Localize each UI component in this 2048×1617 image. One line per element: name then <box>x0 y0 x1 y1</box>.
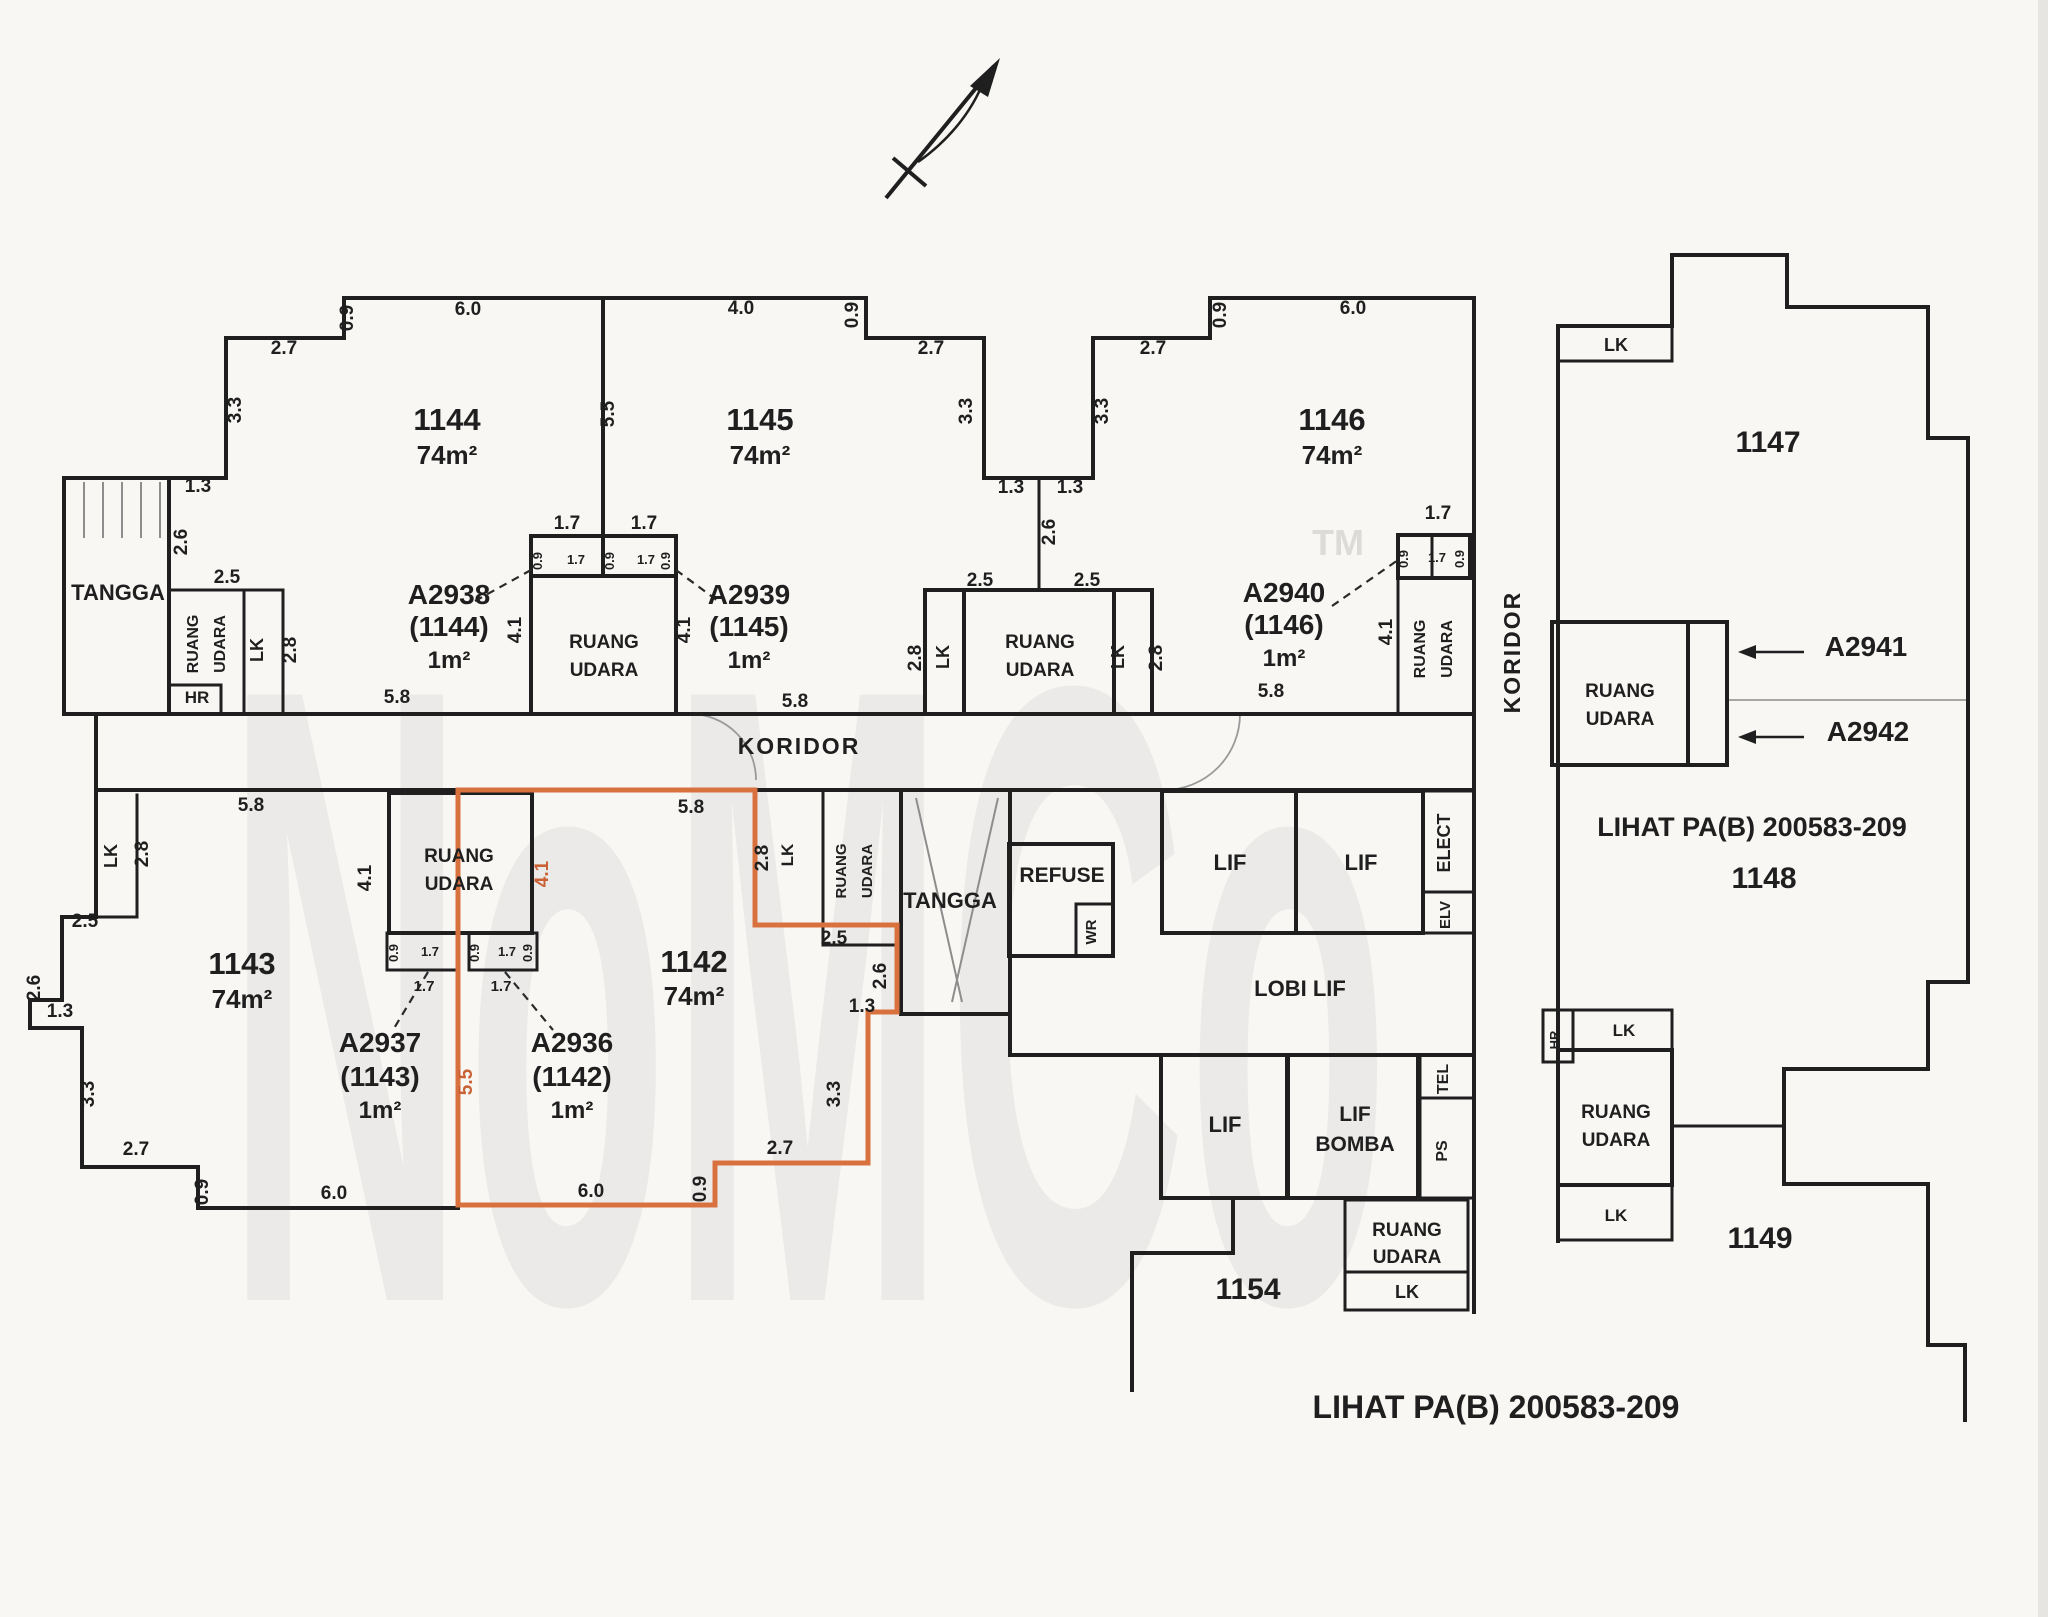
dim: 1.7 <box>567 552 585 567</box>
room-lk-1142: LK <box>778 843 797 866</box>
dim: 5.8 <box>678 797 704 818</box>
dim: 1.7 <box>414 978 435 995</box>
wall-right-steps <box>1784 982 1968 1420</box>
ruang-udara-1147a: RUANG <box>1585 681 1655 702</box>
ruang-udara-1144a: RUANG <box>185 615 202 674</box>
room-ps: PS <box>1434 1140 1451 1162</box>
room-lk-1147: LK <box>1604 335 1628 355</box>
ruang-udara-c2a: RUANG <box>1005 632 1075 653</box>
room-tangga-bottom: TANGGA <box>903 888 997 913</box>
ruang-udara-1143a: RUANG <box>424 846 494 867</box>
accessory-a2939-unit: (1145) <box>709 611 788 642</box>
dim: 2.7 <box>1140 338 1166 359</box>
room-lk-1144: LK <box>247 638 267 662</box>
room-lk-1145b: LK <box>1108 645 1128 669</box>
dim: 1.7 <box>637 552 655 567</box>
corridor-label-v: KORIDOR <box>1499 591 1525 714</box>
room-lif-2: LIF <box>1345 850 1378 875</box>
accessory-a2936: A2936 <box>531 1027 614 1058</box>
dim: 1.7 <box>554 513 580 534</box>
accessory-a2938: A2938 <box>408 579 491 610</box>
dim-boundary: 5.5 <box>456 1068 477 1095</box>
dim: 2.5 <box>821 928 848 949</box>
watermark-tm: TM <box>1312 522 1364 563</box>
unit-1146-area: 74m² <box>1302 440 1363 470</box>
dim: 1.7 <box>631 513 657 534</box>
room-ruang-udara-s1: RUANG <box>1372 1220 1442 1241</box>
dim: 0.9 <box>520 944 535 962</box>
dim: 4.1 <box>505 616 526 643</box>
accessory-a2940-area: 1m² <box>1263 645 1306 672</box>
ruang-udara-c2b: UDARA <box>1006 660 1075 681</box>
dim: 0.9 <box>1396 550 1411 568</box>
unit-1143-number: 1143 <box>208 946 275 981</box>
dim: 2.6 <box>24 975 45 1001</box>
north-arrow-icon <box>886 58 1000 198</box>
ruang-udara-1143b: UDARA <box>425 874 494 895</box>
unit-1146-number: 1146 <box>1298 402 1365 437</box>
accessory-a2941: A2941 <box>1825 631 1908 662</box>
accessory-a2940-unit: (1146) <box>1244 609 1323 640</box>
room-tel: TEL <box>1435 1064 1452 1094</box>
dim: 1.7 <box>421 944 439 959</box>
dim: 1.3 <box>47 1001 73 1022</box>
dim: 0.9 <box>337 305 358 331</box>
dim: 2.6 <box>1039 519 1060 545</box>
dim: 2.8 <box>1146 645 1167 671</box>
accessory-a2936-area: 1m² <box>551 1097 594 1124</box>
dim: 3.3 <box>225 397 246 423</box>
dim: 2.8 <box>905 645 926 671</box>
dim: 2.5 <box>72 911 99 932</box>
room-wr: WR <box>1083 919 1100 944</box>
dim: 0.9 <box>467 944 482 962</box>
dim-boundary: 4.1 <box>532 860 553 887</box>
room-lif-bomba-2: BOMBA <box>1315 1133 1394 1156</box>
accessory-a2937-unit: (1143) <box>340 1061 419 1092</box>
corridor-label-h: KORIDOR <box>738 733 861 759</box>
room-hr-top: HR <box>185 688 210 707</box>
room-hr-right: HR <box>1547 1030 1562 1049</box>
unit-1144-area: 74m² <box>417 440 478 470</box>
dim: 0.9 <box>1452 550 1467 568</box>
ruang-udara-1142a: RUANG <box>833 844 850 899</box>
unit-1144-number: 1144 <box>413 402 481 437</box>
dim: 6.0 <box>455 299 481 320</box>
ruang-udara-1144b: UDARA <box>212 615 229 673</box>
dim: 4.1 <box>1376 618 1397 645</box>
dim: 5.8 <box>238 795 264 816</box>
dim: 6.0 <box>1340 298 1366 319</box>
note-right: LIHAT PA(B) 200583-209 <box>1597 812 1907 842</box>
dim: 1.7 <box>1425 503 1451 524</box>
accessory-a2940: A2940 <box>1243 577 1326 608</box>
unit-1148-number: 1148 <box>1731 862 1796 895</box>
dim: 3.3 <box>956 398 977 424</box>
dim: 2.5 <box>967 570 994 591</box>
dim: 2.8 <box>280 637 301 663</box>
dim: 2.8 <box>752 845 773 871</box>
unit-1142-number: 1142 <box>660 944 727 979</box>
room-lk-1143: LK <box>101 844 121 868</box>
a2941-arrow <box>1738 645 1804 659</box>
dim: 1.3 <box>185 476 211 497</box>
dim: 0.9 <box>842 302 863 328</box>
dim: 3.3 <box>1092 398 1113 424</box>
a2942-arrow <box>1738 730 1804 744</box>
unit-1154-number: 1154 <box>1215 1273 1280 1306</box>
accessory-a2939-area: 1m² <box>728 647 771 674</box>
room-lk-r1: LK <box>1613 1021 1636 1040</box>
dim: 5.5 <box>598 400 619 427</box>
dim: 4.0 <box>728 298 754 319</box>
scan-edge <box>2038 0 2048 1617</box>
accessory-a2937: A2937 <box>339 1027 422 1058</box>
dim: 2.7 <box>123 1139 149 1160</box>
accessory-a2937-area: 1m² <box>359 1097 402 1124</box>
room-lif-3: LIF <box>1209 1112 1242 1137</box>
dim: 0.9 <box>690 1176 711 1202</box>
watermark: NoMCo <box>225 504 1390 1487</box>
ruang-udara-c1b: UDARA <box>570 660 639 681</box>
dim: 5.8 <box>782 691 808 712</box>
dim: 3.3 <box>78 1081 99 1107</box>
dim: 1.3 <box>849 996 875 1017</box>
room-lobi-lif: LOBI LIF <box>1254 976 1346 1001</box>
dim: 4.1 <box>355 864 376 891</box>
ruang-udara-r1: RUANG <box>1581 1102 1651 1123</box>
room-elect: ELECT <box>1434 813 1454 872</box>
dim: 2.6 <box>171 529 192 555</box>
dim: 2.5 <box>214 567 241 588</box>
dim: 2.7 <box>918 338 944 359</box>
dim: 2.6 <box>870 963 891 989</box>
accessory-a2938-unit: (1144) <box>409 611 488 642</box>
unit-1145-area: 74m² <box>730 440 791 470</box>
note-bottom: LIHAT PA(B) 200583-209 <box>1313 1389 1680 1425</box>
dim: 1.3 <box>1057 477 1083 498</box>
dim: 0.9 <box>386 944 401 962</box>
dim: 6.0 <box>578 1181 604 1202</box>
dim: 5.8 <box>1258 681 1284 702</box>
dim: 1.3 <box>998 477 1024 498</box>
floor-plan-svg: NoMCo TM <box>0 0 2048 1617</box>
dim: 2.7 <box>767 1138 793 1159</box>
dim: 1.7 <box>498 944 516 959</box>
room-elv: ELV <box>1437 901 1454 929</box>
ruang-udara-c1a: RUANG <box>569 632 639 653</box>
dim: 0.9 <box>1210 302 1231 328</box>
room-lk-s: LK <box>1395 1282 1419 1302</box>
room-refuse: REFUSE <box>1019 864 1104 887</box>
room-lif-bomba-1: LIF <box>1339 1103 1371 1126</box>
accessory-a2938-area: 1m² <box>428 647 471 674</box>
unit-1143-area: 74m² <box>212 984 273 1014</box>
room-lk-r2: LK <box>1605 1206 1628 1225</box>
accessory-a2936-unit: (1142) <box>532 1061 611 1092</box>
accessory-a2939: A2939 <box>708 579 791 610</box>
unit-1149-number: 1149 <box>1727 1222 1792 1255</box>
stair-hatch-top-tangga <box>84 482 160 538</box>
dim: 2.7 <box>271 338 297 359</box>
unit-1145-number: 1145 <box>726 402 793 437</box>
dim: 5.8 <box>384 687 410 708</box>
dim: 4.1 <box>674 616 695 643</box>
dim: 2.5 <box>1074 570 1101 591</box>
ruang-udara-1146b: UDARA <box>1439 620 1456 678</box>
room-tangga-top: TANGGA <box>71 580 165 605</box>
ruang-udara-1146a: RUANG <box>1412 620 1429 679</box>
room-ruang-udara-s2: UDARA <box>1373 1247 1442 1268</box>
dim: 1.7 <box>491 978 512 995</box>
room-lk-1145a: LK <box>933 645 953 669</box>
dim: 1.7 <box>1428 550 1446 565</box>
dim: 6.0 <box>321 1183 347 1204</box>
dim: 0.9 <box>658 552 673 570</box>
room-lif-1: LIF <box>1214 850 1247 875</box>
ruang-udara-r2: UDARA <box>1582 1130 1651 1151</box>
dim: 3.3 <box>824 1081 845 1107</box>
unit-1142-area: 74m² <box>664 981 725 1011</box>
dim: 0.9 <box>192 1179 213 1205</box>
unit-1147-number: 1147 <box>1735 426 1800 459</box>
ruang-udara-1147b: UDARA <box>1586 709 1655 730</box>
dim: 0.9 <box>602 552 617 570</box>
dim: 0.9 <box>530 552 545 570</box>
dim: 2.8 <box>132 841 153 867</box>
accessory-a2942: A2942 <box>1827 716 1910 747</box>
ruang-udara-1142b: UDARA <box>859 844 876 898</box>
